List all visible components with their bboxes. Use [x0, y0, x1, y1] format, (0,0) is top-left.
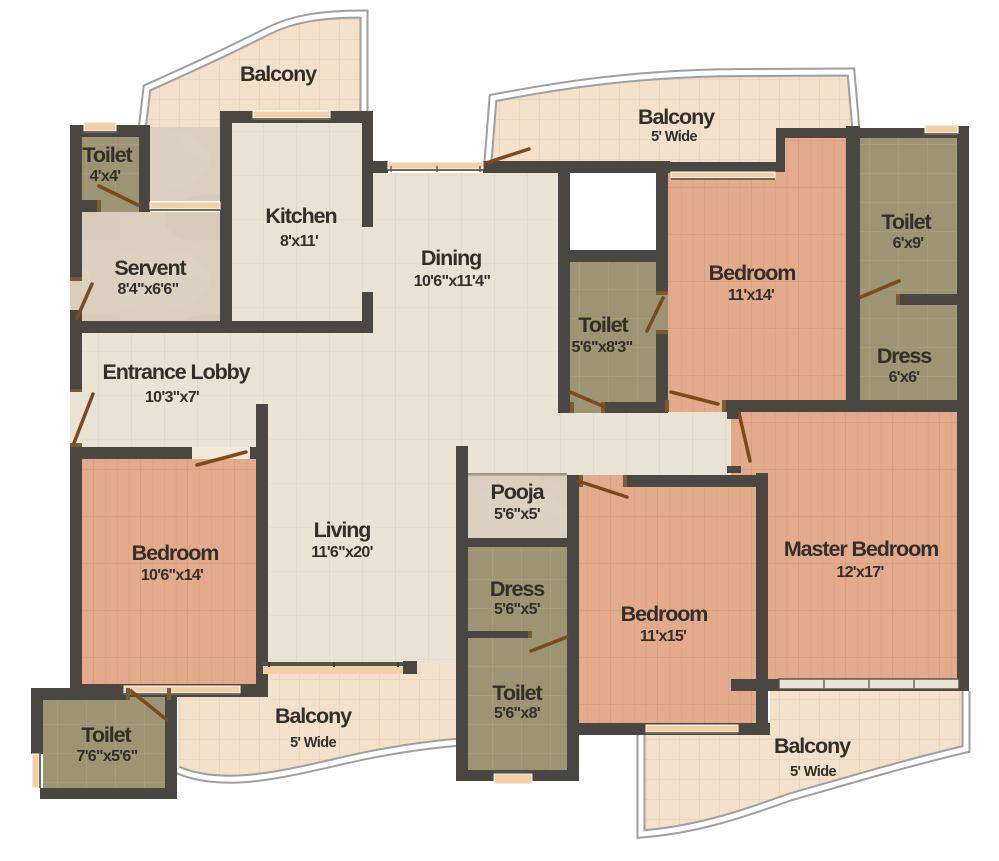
svg-text:6'x9': 6'x9'	[893, 235, 924, 252]
svg-text:8'4"x6'6": 8'4"x6'6"	[118, 281, 179, 298]
svg-text:10'3"x7': 10'3"x7'	[145, 389, 199, 406]
svg-text:8'x11': 8'x11'	[280, 233, 318, 250]
svg-text:Bedroom: Bedroom	[132, 541, 219, 565]
svg-text:Pooja: Pooja	[490, 480, 545, 504]
svg-text:4'x4': 4'x4'	[90, 168, 121, 185]
svg-text:Master Bedroom: Master Bedroom	[784, 537, 938, 561]
svg-text:5'6"x5': 5'6"x5'	[494, 506, 540, 523]
svg-text:Dining: Dining	[421, 246, 481, 270]
svg-text:12'x17': 12'x17'	[836, 564, 883, 581]
svg-text:5' Wide: 5' Wide	[290, 735, 336, 751]
svg-text:5' Wide: 5' Wide	[790, 764, 836, 780]
svg-text:7'6"x5'6": 7'6"x5'6"	[77, 748, 138, 765]
svg-text:Balcony: Balcony	[275, 704, 352, 728]
svg-text:11'x14': 11'x14'	[728, 287, 774, 304]
svg-text:Entrance Lobby: Entrance Lobby	[102, 360, 250, 384]
svg-text:Dress: Dress	[877, 344, 932, 368]
svg-text:Bedroom: Bedroom	[621, 602, 708, 626]
svg-text:Toilet: Toilet	[578, 313, 628, 337]
svg-text:5'6"x8'3": 5'6"x8'3"	[572, 339, 633, 356]
svg-text:6'x6': 6'x6'	[889, 369, 920, 386]
svg-text:Kitchen: Kitchen	[265, 204, 336, 228]
svg-text:Toilet: Toilet	[82, 143, 132, 167]
svg-text:5'6"x8': 5'6"x8'	[494, 705, 540, 722]
svg-text:10'6"x14': 10'6"x14'	[141, 567, 203, 584]
svg-text:Toilet: Toilet	[881, 210, 931, 234]
svg-text:Dress: Dress	[490, 577, 545, 601]
svg-text:Living: Living	[314, 518, 371, 542]
svg-text:Balcony: Balcony	[240, 62, 317, 86]
svg-text:11'6"x20': 11'6"x20'	[311, 544, 372, 561]
svg-text:5'6"x5': 5'6"x5'	[494, 601, 540, 618]
svg-text:Bedroom: Bedroom	[709, 261, 796, 285]
svg-text:Toilet: Toilet	[492, 681, 542, 705]
svg-text:Toilet: Toilet	[81, 723, 131, 747]
svg-text:Balcony: Balcony	[638, 105, 715, 129]
svg-text:10'6"x11'4": 10'6"x11'4"	[414, 273, 491, 290]
svg-text:Balcony: Balcony	[774, 734, 851, 758]
svg-text:11'x15': 11'x15'	[640, 628, 686, 645]
svg-text:5' Wide: 5' Wide	[651, 129, 697, 145]
svg-text:Servent: Servent	[114, 256, 186, 280]
